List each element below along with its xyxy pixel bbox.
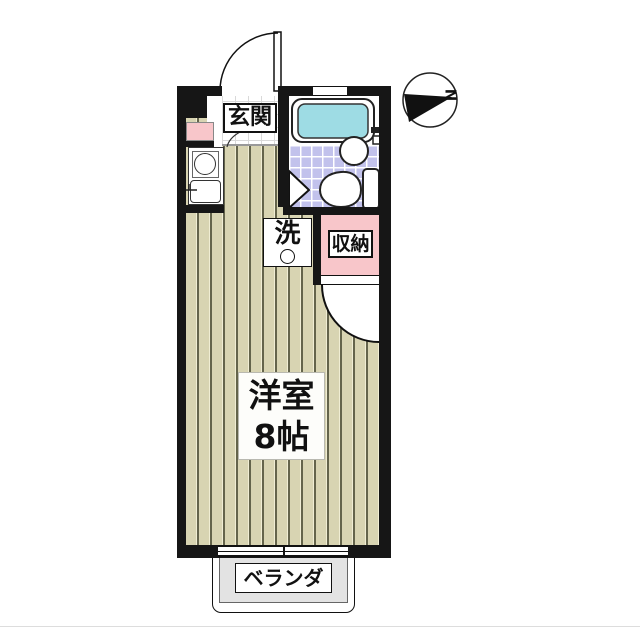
bathtub bbox=[298, 104, 368, 138]
top-window bbox=[313, 86, 347, 96]
wall-below-bathroom bbox=[283, 207, 391, 215]
toilet-tank bbox=[363, 169, 379, 209]
wash-basin bbox=[340, 137, 368, 165]
wall-corner-block bbox=[177, 96, 207, 118]
balcony-window-meeting-stile bbox=[283, 545, 285, 557]
entrance-label: 玄関 bbox=[228, 106, 272, 130]
balcony-label-box: ベランダ bbox=[235, 563, 332, 593]
wall-closet-left bbox=[313, 213, 321, 285]
footer-divider bbox=[0, 626, 640, 627]
wall-left bbox=[177, 86, 186, 558]
entrance-label-box: 玄関 bbox=[223, 103, 277, 133]
toilet-bowl bbox=[320, 172, 361, 207]
entrance-door-leaf bbox=[274, 32, 281, 91]
fixtures-overlay: N bbox=[0, 0, 640, 640]
wall-below-kitchen bbox=[177, 205, 224, 213]
wall-entrance-bath-divider bbox=[278, 96, 289, 207]
entrance-inner-door-arc bbox=[227, 132, 240, 147]
closet-label: 収納 bbox=[331, 234, 369, 255]
wall-below-counter bbox=[186, 141, 214, 147]
compass-north-label: N bbox=[442, 89, 460, 102]
balcony-label: ベランダ bbox=[244, 567, 324, 589]
western-room-name: 洋室 bbox=[249, 375, 315, 416]
western-room-size: 8帖 bbox=[254, 416, 310, 457]
western-room-label-box: 洋室 8帖 bbox=[238, 372, 325, 460]
wall-right bbox=[379, 86, 391, 558]
compass: N bbox=[403, 73, 460, 127]
closet-label-box: 収納 bbox=[328, 230, 373, 258]
bathroom-folding-door bbox=[289, 171, 309, 208]
floorplan-image: 洗 N bbox=[0, 0, 640, 640]
entrance-door-arc bbox=[220, 33, 278, 91]
